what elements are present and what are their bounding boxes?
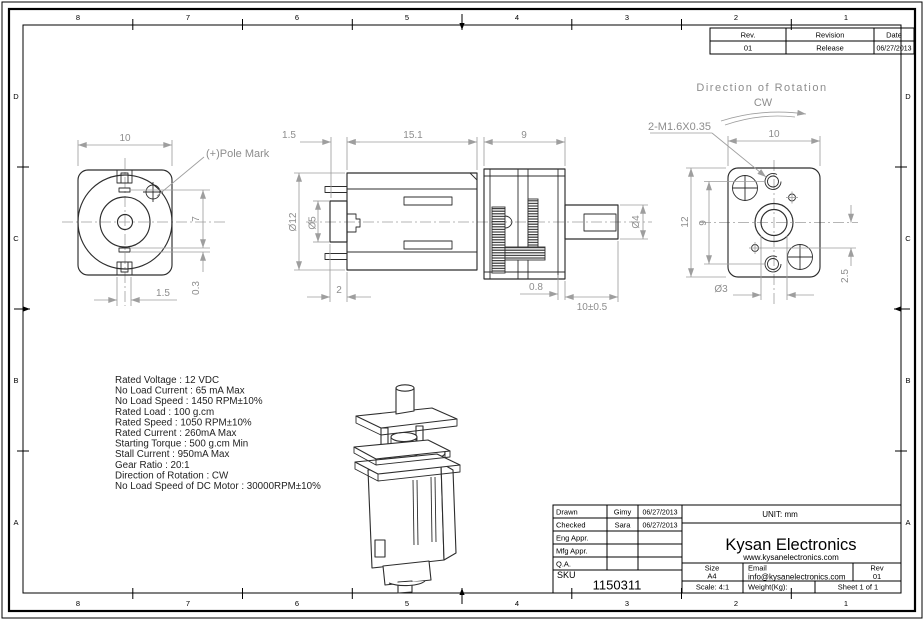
approval-row-label: Eng Appr. [556,534,589,543]
spec-line: No Load Speed : 1450 RPM±10% [115,396,263,407]
spec-line: No Load Speed of DC Motor : 30000RPM±10% [115,481,321,492]
zone-left: A [13,518,18,527]
dim-terminal: 1.5 [156,288,170,299]
company-name: Kysan Electronics [725,536,856,554]
dim-shaft-dia: Ø4 [631,215,642,229]
rev-value: 01 [873,572,881,581]
approval-row-label: Mfg Appr. [556,547,588,556]
rear-view: 10 (+)Pole Mark 7 0.3 1.5 [62,133,270,306]
zone-right: D [905,92,911,101]
pole-mark [143,182,163,202]
dim-plate: 0.8 [529,282,543,293]
weight-label: Weight(Kg): [748,583,787,592]
revision-table: Rev. Revision Date 01 Release 06/27/2013 [710,28,914,54]
rev-col-header: Rev. [741,31,756,40]
rotation-label: Direction of Rotation [696,82,827,94]
zone-right: C [905,234,911,243]
dim-face-height: 12 [680,216,691,228]
zone-top: 7 [186,13,190,22]
page-edge [2,2,922,618]
scale-value: Scale: 4:1 [696,583,729,592]
gearbox-section [484,169,565,279]
dim-rear-width: 10 [119,133,131,144]
inner-frame [23,25,901,593]
side-view: 1.5 15.1 9 Ø12 Ø5 2 0.8 10±0.5 Ø4 [282,130,652,313]
shaft-flat [584,214,616,231]
center-mark-left [14,306,30,311]
revision-value: Release [816,44,844,53]
revision-col-header: Revision [816,31,845,40]
outer-border [9,9,915,611]
terminal-top [117,170,132,183]
spec-line: Rated Current : 260mA Max [115,428,237,439]
zone-top: 4 [515,13,519,22]
brush-mark-top [119,188,130,192]
zone-bottom: 7 [186,599,190,608]
zone-top: 1 [844,13,848,22]
spec-line: Stall Current : 950mA Max [115,449,229,460]
approval-row-label: Checked [556,521,586,530]
dim-boss-dia: Ø5 [308,216,319,230]
motor-can [347,173,477,270]
approval-row-label: Q.A. [556,560,571,569]
dim-boss-protrusion: 1.5 [282,130,296,141]
company-website: www.kysanelectronics.com [742,553,839,562]
spec-line: Gear Ratio : 20:1 [115,460,190,471]
dim-gearbox-length: 9 [521,130,527,141]
gear-1 [492,207,505,273]
zone-top: 8 [76,13,80,22]
zone-bottom: 4 [515,599,519,608]
size-value: A4 [707,572,716,581]
dim-boss-dia-face: Ø3 [714,284,728,295]
specs-block: Rated Voltage : 12 VDC No Load Current :… [115,375,321,492]
rotation-callout: Direction of Rotation CW [696,82,827,125]
email-value: info@kysanelectronics.com [748,573,846,582]
approval-row-label: Drawn [556,508,578,517]
zone-right: A [905,518,910,527]
dim-body-dia: Ø12 [288,212,299,231]
date-value: 06/27/2013 [876,46,911,53]
dim-brush: 0.3 [191,281,202,295]
rotation-value: CW [754,97,773,109]
rev-value: 01 [744,44,752,53]
pin-hole-1 [786,192,798,204]
drawing-canvas: 8 7 6 5 4 3 2 1 8 7 6 5 4 3 2 1 D C B A … [0,0,924,620]
thread-hole-bottom [765,256,781,272]
date-col-header: Date [886,31,902,40]
pole-mark-label: (+)Pole Mark [206,148,270,160]
brush-mark-bottom [119,248,130,252]
dim-pin-spacing: 7 [191,216,202,222]
zone-bottom: 6 [295,599,299,608]
iso-body-notch [375,540,385,557]
sku-label: SKU [557,570,576,580]
face-view: 10 12 9 2.5 Ø3 2-M1.6X0.35 [648,121,858,305]
zone-bottom: 5 [405,599,409,608]
gear-3 [505,247,545,260]
spec-line: No Load Current : 65 mA Max [115,386,245,397]
approval-name: Gimy [614,508,632,517]
iso-motor-body-side [441,463,456,560]
can-notch [347,214,360,232]
zone-top: 6 [295,13,299,22]
zone-bottom: 3 [625,599,629,608]
dim-face-width: 10 [768,129,780,140]
dim-pin-offset: 2.5 [840,269,851,283]
vent-slot-top [404,197,452,205]
zone-bottom: 1 [844,599,848,608]
unit-label: UNIT: mm [762,510,798,519]
isometric-view [354,385,460,593]
zone-left: C [13,234,19,243]
center-mark-top [459,14,464,30]
vent-slot-bottom [404,241,452,249]
zone-top: 2 [734,13,738,22]
dim-step: 2 [336,285,342,296]
spec-line: Starting Torque : 500 g.cm Min [115,439,248,450]
zone-left: B [13,376,18,385]
zone-left: D [13,92,19,101]
dim-shaft-length: 10±0.5 [577,302,608,313]
center-mark-bottom [459,588,464,604]
email-label: Email [748,564,767,573]
thread-callout: 2-M1.6X0.35 [648,121,711,133]
sheet-number: Sheet 1 of 1 [838,583,878,592]
spec-line: Rated Speed : 1050 RPM±10% [115,417,252,428]
pin-hole-2 [749,242,761,254]
approval-date: 06/27/2013 [642,510,677,517]
title-block: Drawn Checked Eng Appr. Mfg Appr. Q.A. G… [553,505,901,593]
sheet-frame [2,2,922,618]
drawing-sheet: 8 7 6 5 4 3 2 1 8 7 6 5 4 3 2 1 D C B A … [0,0,924,620]
dim-hole-spacing: 9 [698,220,709,226]
center-mark-right [894,306,910,311]
thread-hole-top [765,173,781,189]
iso-shaft [396,388,414,414]
gear-2 [528,199,538,247]
zone-top: 3 [625,13,629,22]
zone-bottom: 2 [734,599,738,608]
terminal-tab-top [325,187,347,193]
sku-value: 1150311 [593,578,642,593]
zone-bottom: 8 [76,599,80,608]
terminal-tab-bottom [325,254,347,260]
iso-shaft-top [396,385,414,391]
rear-bearing-boss [330,201,347,242]
assembly-screw-1 [733,176,758,201]
approval-name: Sara [615,521,632,530]
zone-top: 5 [405,13,409,22]
dim-body-length: 15.1 [403,130,423,141]
spec-line: Rated Load : 100 g.cm [115,407,214,418]
spec-line: Rated Voltage : 12 VDC [115,375,219,386]
zone-right: B [905,376,910,385]
spec-line: Direction of Rotation : CW [115,470,229,481]
approval-date: 06/27/2013 [642,523,677,530]
iso-gear-cylinder [391,433,417,442]
